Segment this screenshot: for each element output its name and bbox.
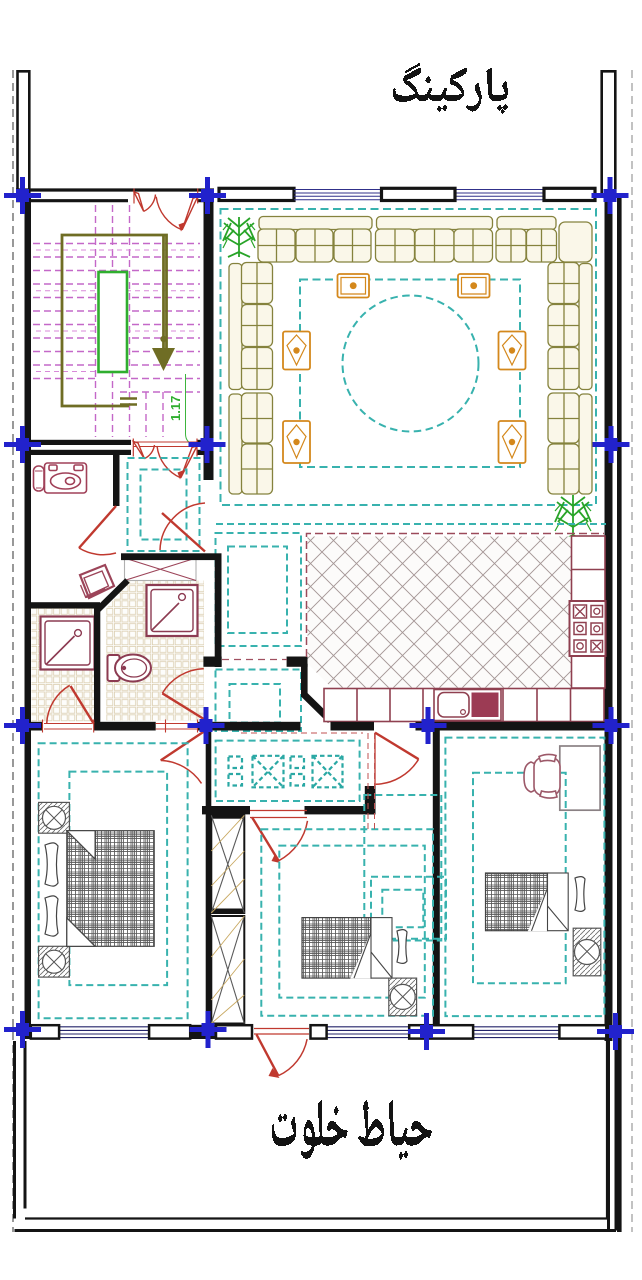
svg-text:1.17: 1.17	[168, 396, 183, 421]
